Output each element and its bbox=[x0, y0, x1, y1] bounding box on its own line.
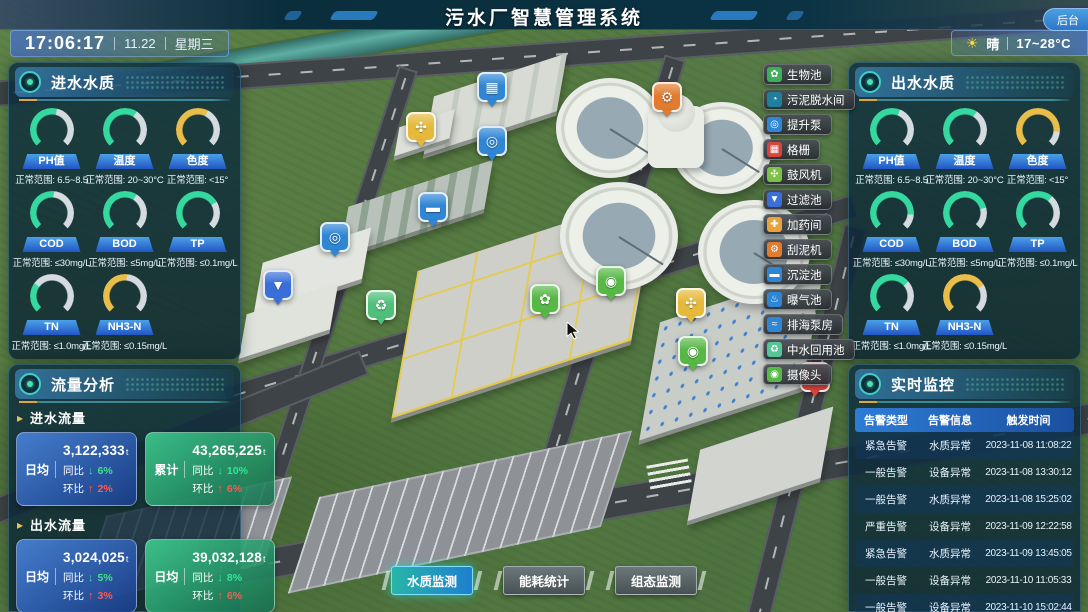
alarm-time: 2023-11-08 15:25:02 bbox=[983, 494, 1074, 505]
facility-label: 排海泵房 bbox=[787, 317, 833, 333]
marker-icon: ⚙ bbox=[661, 90, 674, 104]
yoy-row: 同比 ↓ 8% bbox=[192, 570, 265, 585]
gauge-ring: 3.5 bbox=[103, 191, 147, 235]
bottom-tab-bar: 水质监测 能耗统计 组态监测 bbox=[391, 566, 697, 595]
flow-number: 3,024,025 bbox=[63, 550, 125, 565]
alarm-info: 设备异常 bbox=[917, 465, 983, 480]
alarm-time: 2023-11-10 11:05:33 bbox=[983, 575, 1074, 586]
monitoring-panel: 实时监控 告警类型告警信息触发时间 紧急告警 水质异常 2023-11-08 1… bbox=[848, 364, 1081, 612]
flow-number: 39,032,128 bbox=[192, 550, 262, 565]
flow-card-body: 43,265,225t 同比 ↓ 10% 环比 ↑ 6% bbox=[192, 442, 265, 496]
mom-value: 3% bbox=[98, 590, 113, 602]
gauge-normal-range: 正常范围: <15° bbox=[167, 172, 228, 186]
scraper-marker[interactable]: ⚙ bbox=[652, 82, 682, 112]
facility-bio-pool[interactable]: ✿ 生物池 bbox=[763, 64, 832, 85]
arrow-down-icon: ↓ bbox=[88, 465, 94, 477]
yoy-value: 6% bbox=[98, 465, 113, 477]
backend-button[interactable]: 后台 bbox=[1043, 8, 1088, 31]
arrow-up-icon: ↑ bbox=[217, 590, 223, 602]
mom-value: 6% bbox=[227, 590, 242, 602]
gauge-ring: 18.1 bbox=[30, 191, 74, 235]
section-underline bbox=[859, 401, 1070, 403]
gauge-value: 22.0 bbox=[943, 123, 987, 137]
flow-number: 43,265,225 bbox=[192, 443, 262, 458]
bio-pool-marker[interactable]: ✿ bbox=[530, 284, 560, 314]
mom-value: 2% bbox=[98, 483, 113, 495]
inlet-flow-cards: 日均 3,122,333t 同比 ↓ 6% 环比 ↑ 2% 累计 43,265,… bbox=[15, 432, 234, 506]
outlet-flow-subtitle: 出水流量 bbox=[17, 515, 232, 534]
alarm-type: 紧急告警 bbox=[855, 438, 917, 453]
inlet-gauges: 7.7 PH值 正常范围: 6.5~8.5 20.0 温度 正常范围: 20~3… bbox=[15, 106, 234, 352]
blower-marker-2[interactable]: ✣ bbox=[676, 288, 706, 318]
facility-label: 中水回用池 bbox=[787, 342, 845, 358]
quality-gauge: 22.0 温度 正常范围: 20~30°C bbox=[929, 108, 1001, 186]
alarm-table-body: 紧急告警 水质异常 2023-11-08 11:08:22 一般告警 设备异常 … bbox=[855, 432, 1074, 612]
gauge-ring: 0.07 bbox=[1016, 191, 1060, 235]
flow-card-body: 3,122,333t 同比 ↓ 6% 环比 ↑ 2% bbox=[63, 442, 128, 496]
flow-unit: t bbox=[126, 447, 129, 457]
flow-analysis-panel: 流量分析 进水流量 日均 3,122,333t 同比 ↓ 6% 环比 ↑ 2% … bbox=[8, 364, 241, 612]
gauge-ring: 0.12 bbox=[943, 274, 987, 318]
facility-icon: ✚ bbox=[767, 217, 782, 232]
outlet-flow-cards: 日均 3,024,025t 同比 ↓ 5% 环比 ↑ 3% 日均 39,032,… bbox=[15, 539, 234, 612]
gauge-label: BOD bbox=[96, 237, 154, 252]
gauge-ring: 5.5 bbox=[870, 108, 914, 152]
gauge-normal-range: 正常范围: ≤30mg/L bbox=[853, 255, 931, 269]
arrow-down-icon: ↓ bbox=[88, 572, 94, 584]
gauge-value: 0.07 bbox=[1016, 206, 1060, 220]
facility-icon: ♻ bbox=[767, 342, 782, 357]
section-icon bbox=[19, 71, 41, 93]
divider bbox=[165, 37, 166, 50]
flow-card-body: 39,032,128t 同比 ↓ 8% 环比 ↑ 6% bbox=[192, 549, 265, 603]
gauge-normal-range: 正常范围: ≤0.1mg/L bbox=[157, 255, 237, 269]
quality-gauge: 29.0 COD 正常范围: ≤30mg/L bbox=[856, 191, 928, 269]
marker-icon: ▦ bbox=[485, 80, 498, 94]
mom-row: 环比 ↑ 2% bbox=[63, 481, 128, 496]
flow-card-body: 3,024,025t 同比 ↓ 5% 环比 ↑ 3% bbox=[63, 549, 128, 603]
section-icon bbox=[19, 373, 41, 395]
facility-icon: ≈ bbox=[767, 317, 782, 332]
section-header: 进水水质 bbox=[15, 67, 234, 97]
quality-gauge: 0.08 NH3-N 正常范围: ≤0.15mg/L bbox=[89, 274, 161, 352]
facility-scraper[interactable]: ⚙ 刮泥机 bbox=[763, 239, 832, 260]
alarm-info: 水质异常 bbox=[917, 492, 983, 507]
clock-date: 11.22 bbox=[124, 36, 156, 51]
tab-energy-stats[interactable]: 能耗统计 bbox=[503, 566, 585, 595]
facility-icon: ✿ bbox=[767, 67, 782, 82]
outlet-quality-panel: 出水水质 5.5 PH值 正常范围: 6.5~8.5 22.0 温度 正常范围:… bbox=[848, 62, 1081, 360]
flow-card-label: 日均 bbox=[25, 461, 56, 478]
clock-weekday: 星期三 bbox=[175, 34, 214, 53]
mouse-cursor bbox=[566, 322, 580, 340]
facility-icon: ▬ bbox=[767, 267, 782, 282]
flow-unit: t bbox=[263, 554, 266, 564]
dots-decoration bbox=[965, 377, 1064, 391]
alarm-time: 2023-11-08 13:30:12 bbox=[983, 467, 1074, 478]
facility-button-list: ✿ 生物池 ◔ 污泥脱水间 ◎ 提升泵 ▦ 格栅 ✣ 鼓风机 ▼ 过滤池 ✚ 加… bbox=[763, 64, 855, 385]
title-band: 污水厂智慧管理系统 bbox=[0, 0, 1088, 30]
gauge-normal-range: 正常范围: 20~30°C bbox=[85, 172, 163, 186]
yoy-label: 同比 bbox=[192, 570, 213, 585]
alarm-row[interactable]: 紧急告警 水质异常 2023-11-08 11:08:22 bbox=[855, 432, 1074, 459]
weather-temp: 17~28°C bbox=[1016, 36, 1071, 51]
mom-value: 6% bbox=[227, 483, 242, 495]
flow-unit: t bbox=[126, 554, 129, 564]
facility-icon: ◎ bbox=[767, 117, 782, 132]
section-underline bbox=[859, 99, 1070, 101]
facility-sea-pump-house[interactable]: ≈ 排海泵房 bbox=[763, 314, 843, 335]
arrow-down-icon: ↓ bbox=[217, 572, 223, 584]
facility-sludge-dewatering[interactable]: ◔ 污泥脱水间 bbox=[763, 89, 855, 110]
gauge-label: COD bbox=[23, 237, 81, 252]
alarm-table-header: 告警类型告警信息触发时间 bbox=[855, 408, 1074, 432]
facility-blower[interactable]: ✣ 鼓风机 bbox=[763, 164, 832, 185]
mom-label: 环比 bbox=[63, 588, 84, 603]
gauge-normal-range: 正常范围: ≤5mg/L bbox=[88, 255, 161, 269]
alarm-time: 2023-11-09 12:22:58 bbox=[983, 521, 1074, 532]
tab-water-quality-monitor[interactable]: 水质监测 bbox=[391, 566, 473, 595]
facility-icon: ▼ bbox=[767, 192, 782, 207]
facility-aeration[interactable]: ♨ 曝气池 bbox=[763, 289, 832, 310]
clock-time: 17:06:17 bbox=[25, 33, 105, 54]
gauge-value: 0.3 bbox=[30, 289, 74, 303]
mom-row: 环比 ↑ 3% bbox=[63, 588, 128, 603]
alarm-type: 一般告警 bbox=[855, 600, 917, 612]
quality-gauge: 3.5 BOD 正常范围: ≤5mg/L bbox=[89, 191, 161, 269]
camera-marker-1[interactable]: ◉ bbox=[596, 266, 626, 296]
sun-icon: ☀ bbox=[966, 35, 979, 52]
yoy-label: 同比 bbox=[63, 463, 84, 478]
gauge-value: 4.5 bbox=[943, 206, 987, 220]
weather-label: 晴 bbox=[986, 34, 999, 53]
yoy-row: 同比 ↓ 5% bbox=[63, 570, 128, 585]
gauge-label: TN bbox=[863, 320, 921, 335]
facility-icon: ◔ bbox=[767, 92, 782, 107]
mom-label: 环比 bbox=[192, 481, 213, 496]
gauge-ring: 20.0 bbox=[103, 108, 147, 152]
gauge-label: PH值 bbox=[23, 154, 81, 169]
gauge-normal-range: 正常范围: ≤5mg/L bbox=[928, 255, 1001, 269]
facility-grid[interactable]: ▦ 格栅 bbox=[763, 139, 820, 160]
gauge-label: BOD bbox=[936, 237, 994, 252]
facility-icon: ⚙ bbox=[767, 242, 782, 257]
section-header: 流量分析 bbox=[15, 369, 234, 399]
mom-row: 环比 ↑ 6% bbox=[192, 588, 265, 603]
gauge-normal-range: 正常范围: 6.5~8.5 bbox=[15, 172, 88, 186]
blower-marker[interactable]: ✣ bbox=[406, 112, 436, 142]
gauge-ring: 29.0 bbox=[870, 191, 914, 235]
gauge-label: PH值 bbox=[863, 154, 921, 169]
divider bbox=[114, 37, 115, 50]
gauge-ring: 4.5 bbox=[943, 191, 987, 235]
facility-camera[interactable]: ◉ 摄像头 bbox=[763, 364, 832, 385]
alarm-info: 水质异常 bbox=[917, 546, 983, 561]
gauge-label: TP bbox=[1009, 237, 1067, 252]
gauge-ring: 0.08 bbox=[103, 274, 147, 318]
gauge-value: 3.5 bbox=[103, 206, 147, 220]
gauge-value: 7.7 bbox=[30, 123, 74, 137]
outlet-gauges: 5.5 PH值 正常范围: 6.5~8.5 22.0 温度 正常范围: 20~3… bbox=[855, 106, 1074, 352]
quality-gauge: 5.5 PH值 正常范围: 6.5~8.5 bbox=[856, 108, 928, 186]
gauge-value: 18.1 bbox=[30, 206, 74, 220]
section-underline bbox=[19, 99, 230, 101]
equipment-marker[interactable]: ▦ bbox=[477, 72, 507, 102]
facility-label: 刮泥机 bbox=[787, 242, 822, 258]
alarm-info: 设备异常 bbox=[917, 519, 983, 534]
marker-icon: ✿ bbox=[539, 292, 551, 306]
facility-label: 污泥脱水间 bbox=[787, 92, 845, 108]
flow-card: 日均 3,122,333t 同比 ↓ 6% 环比 ↑ 2% bbox=[16, 432, 137, 506]
gauge-normal-range: 正常范围: 20~30°C bbox=[925, 172, 1003, 186]
facility-lift-pump[interactable]: ◎ 提升泵 bbox=[763, 114, 832, 135]
yoy-value: 5% bbox=[98, 572, 113, 584]
gauge-ring: 14.0 bbox=[1016, 108, 1060, 152]
yoy-value: 8% bbox=[227, 572, 242, 584]
marker-icon: ▼ bbox=[271, 278, 285, 292]
inlet-quality-panel: 进水水质 7.7 PH值 正常范围: 6.5~8.5 20.0 温度 正常范围:… bbox=[8, 62, 241, 360]
gauge-normal-range: 正常范围: ≤0.15mg/L bbox=[922, 338, 1007, 352]
facility-label: 加药间 bbox=[787, 217, 822, 233]
gauge-value: 0.8 bbox=[870, 289, 914, 303]
yoy-label: 同比 bbox=[63, 570, 84, 585]
gauge-label: NH3-N bbox=[96, 320, 154, 335]
alarm-row[interactable]: 一般告警 设备异常 2023-11-10 15:02:44 bbox=[855, 594, 1074, 612]
facility-label: 沉淀池 bbox=[787, 267, 822, 283]
quality-gauge: 0.08 TP 正常范围: ≤0.1mg/L bbox=[162, 191, 234, 269]
alarm-time: 2023-11-08 11:08:22 bbox=[983, 440, 1074, 451]
alarm-row[interactable]: 一般告警 水质异常 2023-11-08 15:25:02 bbox=[855, 486, 1074, 513]
column-header: 告警信息 bbox=[917, 412, 983, 428]
gauge-normal-range: 正常范围: ≤1.0mg/L bbox=[11, 338, 91, 352]
lift-pump-marker[interactable]: ◎ bbox=[477, 126, 507, 156]
quality-gauge: 7.7 PH值 正常范围: 6.5~8.5 bbox=[16, 108, 88, 186]
facility-icon: ◉ bbox=[767, 367, 782, 382]
gauge-value: 29.0 bbox=[870, 206, 914, 220]
gauge-label: 色度 bbox=[1009, 154, 1067, 169]
facility-label: 摄像头 bbox=[787, 367, 822, 383]
gauge-value: 0.08 bbox=[176, 206, 220, 220]
sedimentation-marker[interactable]: ▬ bbox=[418, 192, 448, 222]
alarm-type: 一般告警 bbox=[855, 573, 917, 588]
yoy-label: 同比 bbox=[192, 463, 213, 478]
alarm-row[interactable]: 一般告警 设备异常 2023-11-08 13:30:12 bbox=[855, 459, 1074, 486]
section-title: 实时监控 bbox=[891, 374, 955, 395]
facility-reuse-pool[interactable]: ♻ 中水回用池 bbox=[763, 339, 855, 360]
section-header: 出水水质 bbox=[855, 67, 1074, 97]
facility-icon: ▦ bbox=[767, 142, 782, 157]
flow-card-label: 累计 bbox=[154, 461, 185, 478]
gauge-normal-range: 正常范围: ≤0.1mg/L bbox=[997, 255, 1077, 269]
alarm-row[interactable]: 紧急告警 水质异常 2023-11-09 13:45:05 bbox=[855, 540, 1074, 567]
facility-label: 鼓风机 bbox=[787, 167, 822, 183]
quality-gauge: 9.0 色度 正常范围: <15° bbox=[162, 108, 234, 186]
quality-gauge: 18.1 COD 正常范围: ≤30mg/L bbox=[16, 191, 88, 269]
section-title: 流量分析 bbox=[51, 374, 115, 395]
yoy-row: 同比 ↓ 6% bbox=[63, 463, 128, 478]
alarm-type: 一般告警 bbox=[855, 492, 917, 507]
mom-label: 环比 bbox=[192, 588, 213, 603]
divider bbox=[1007, 37, 1008, 50]
yoy-value: 10% bbox=[227, 465, 248, 477]
gauge-value: 20.0 bbox=[103, 123, 147, 137]
quality-gauge: 0.12 NH3-N 正常范围: ≤0.15mg/L bbox=[929, 274, 1001, 352]
flow-card: 累计 43,265,225t 同比 ↓ 10% 环比 ↑ 6% bbox=[145, 432, 274, 506]
gauge-normal-range: 正常范围: 6.5~8.5 bbox=[855, 172, 928, 186]
arrow-down-icon: ↓ bbox=[217, 465, 223, 477]
marker-icon: ◎ bbox=[329, 230, 341, 244]
gauge-label: 温度 bbox=[96, 154, 154, 169]
gauge-label: TP bbox=[169, 237, 227, 252]
alarm-time: 2023-11-09 13:45:05 bbox=[983, 548, 1074, 559]
gauge-value: 14.0 bbox=[1016, 123, 1060, 137]
marker-icon: ✣ bbox=[685, 296, 697, 310]
arrow-up-icon: ↑ bbox=[88, 483, 94, 495]
flow-value: 3,122,333t bbox=[63, 442, 128, 460]
flow-card: 日均 39,032,128t 同比 ↓ 8% 环比 ↑ 6% bbox=[145, 539, 274, 612]
arrow-up-icon: ↑ bbox=[88, 590, 94, 602]
column-header: 告警类型 bbox=[855, 412, 917, 428]
quality-gauge: 4.5 BOD 正常范围: ≤5mg/L bbox=[929, 191, 1001, 269]
facility-icon: ✣ bbox=[767, 167, 782, 182]
facility-label: 生物池 bbox=[787, 67, 822, 83]
dots-decoration bbox=[125, 377, 224, 391]
dashboard-screen: ▦ ✣ ◎ ⚙ ▬ ◎ ▼ ♻ ✿ ◉ ✣ ◉ ⚠ 污水厂智慧管理系统 17:0… bbox=[0, 0, 1088, 612]
mom-label: 环比 bbox=[63, 481, 84, 496]
arrow-up-icon: ↑ bbox=[217, 483, 223, 495]
quality-gauge: 0.07 TP 正常范围: ≤0.1mg/L bbox=[1002, 191, 1074, 269]
yoy-row: 同比 ↓ 10% bbox=[192, 463, 265, 478]
gauge-normal-range: 正常范围: <15° bbox=[1007, 172, 1068, 186]
section-icon bbox=[859, 373, 881, 395]
alarm-info: 水质异常 bbox=[917, 438, 983, 453]
alarm-row[interactable]: 一般告警 设备异常 2023-11-10 11:05:33 bbox=[855, 567, 1074, 594]
gauge-normal-range: 正常范围: ≤30mg/L bbox=[13, 255, 91, 269]
gauge-ring: 7.7 bbox=[30, 108, 74, 152]
facility-filter-pool[interactable]: ▼ 过滤池 bbox=[763, 189, 832, 210]
marker-icon: ♻ bbox=[375, 298, 388, 312]
alarm-row[interactable]: 严重告警 设备异常 2023-11-09 12:22:58 bbox=[855, 513, 1074, 540]
facility-label: 曝气池 bbox=[787, 292, 822, 308]
gauge-value: 9.0 bbox=[176, 123, 220, 137]
gauge-value: 0.12 bbox=[943, 289, 987, 303]
tab-label: 水质监测 bbox=[407, 575, 457, 589]
alarm-info: 设备异常 bbox=[917, 600, 983, 612]
reuse-pool-marker[interactable]: ♻ bbox=[366, 290, 396, 320]
facility-label: 格栅 bbox=[787, 142, 810, 158]
marker-icon: ▬ bbox=[426, 200, 440, 214]
section-icon bbox=[859, 71, 881, 93]
flow-value: 3,024,025t bbox=[63, 549, 128, 567]
section-underline bbox=[19, 401, 230, 403]
quality-gauge: 20.0 温度 正常范围: 20~30°C bbox=[89, 108, 161, 186]
gauge-label: 色度 bbox=[169, 154, 227, 169]
marker-icon: ◎ bbox=[486, 134, 498, 148]
facility-sedimentation[interactable]: ▬ 沉淀池 bbox=[763, 264, 832, 285]
flow-number: 3,122,333 bbox=[63, 443, 125, 458]
facility-label: 过滤池 bbox=[787, 192, 822, 208]
column-header: 触发时间 bbox=[983, 412, 1074, 428]
alarm-type: 紧急告警 bbox=[855, 546, 917, 561]
gauge-label: TN bbox=[23, 320, 81, 335]
gauge-ring: 0.08 bbox=[176, 191, 220, 235]
dots-decoration bbox=[965, 75, 1064, 89]
inlet-flow-subtitle: 进水流量 bbox=[17, 408, 232, 427]
marker-icon: ✣ bbox=[415, 120, 427, 134]
camera-marker-2[interactable]: ◉ bbox=[678, 336, 708, 366]
alarm-info: 设备异常 bbox=[917, 573, 983, 588]
gauge-ring: 9.0 bbox=[176, 108, 220, 152]
clock-bar: 17:06:17 11.22 星期三 bbox=[10, 30, 229, 57]
quality-gauge: 0.3 TN 正常范围: ≤1.0mg/L bbox=[16, 274, 88, 352]
marker-icon: ◉ bbox=[687, 344, 699, 358]
gauge-label: COD bbox=[863, 237, 921, 252]
gauge-value: 0.08 bbox=[103, 289, 147, 303]
facility-dosing-room[interactable]: ✚ 加药间 bbox=[763, 214, 832, 235]
gauge-ring: 0.8 bbox=[870, 274, 914, 318]
alarm-time: 2023-11-10 15:02:44 bbox=[983, 602, 1074, 612]
section-title: 出水水质 bbox=[891, 72, 955, 93]
gauge-label: 温度 bbox=[936, 154, 994, 169]
mom-row: 环比 ↑ 6% bbox=[192, 481, 265, 496]
gauge-value: 5.5 bbox=[870, 123, 914, 137]
flow-card: 日均 3,024,025t 同比 ↓ 5% 环比 ↑ 3% bbox=[16, 539, 137, 612]
tab-label: 组态监测 bbox=[631, 575, 681, 589]
gauge-normal-range: 正常范围: ≤0.15mg/L bbox=[82, 338, 167, 352]
page-title: 污水厂智慧管理系统 bbox=[0, 3, 1088, 30]
dots-decoration bbox=[125, 75, 224, 89]
marker-icon: ◉ bbox=[605, 274, 617, 288]
alarm-type: 严重告警 bbox=[855, 519, 917, 534]
filter-pool-marker[interactable]: ▼ bbox=[263, 270, 293, 300]
weather-bar: ☀ 晴 17~28°C bbox=[951, 30, 1088, 56]
flow-card-label: 日均 bbox=[25, 568, 56, 585]
quality-gauge: 14.0 色度 正常范围: <15° bbox=[1002, 108, 1074, 186]
facility-icon: ♨ bbox=[767, 292, 782, 307]
tab-scada-monitor[interactable]: 组态监测 bbox=[615, 566, 697, 595]
section-title: 进水水质 bbox=[51, 72, 115, 93]
pump-station-marker[interactable]: ◎ bbox=[320, 222, 350, 252]
alarm-type: 一般告警 bbox=[855, 465, 917, 480]
quality-gauge: 0.8 TN 正常范围: ≤1.0mg/L bbox=[856, 274, 928, 352]
flow-value: 43,265,225t bbox=[192, 442, 265, 460]
flow-card-label: 日均 bbox=[154, 568, 185, 585]
gauge-label: NH3-N bbox=[936, 320, 994, 335]
section-header: 实时监控 bbox=[855, 369, 1074, 399]
tab-label: 能耗统计 bbox=[519, 575, 569, 589]
gauge-ring: 22.0 bbox=[943, 108, 987, 152]
facility-label: 提升泵 bbox=[787, 117, 822, 133]
flow-unit: t bbox=[263, 447, 266, 457]
gauge-ring: 0.3 bbox=[30, 274, 74, 318]
gauge-normal-range: 正常范围: ≤1.0mg/L bbox=[851, 338, 931, 352]
flow-value: 39,032,128t bbox=[192, 549, 265, 567]
